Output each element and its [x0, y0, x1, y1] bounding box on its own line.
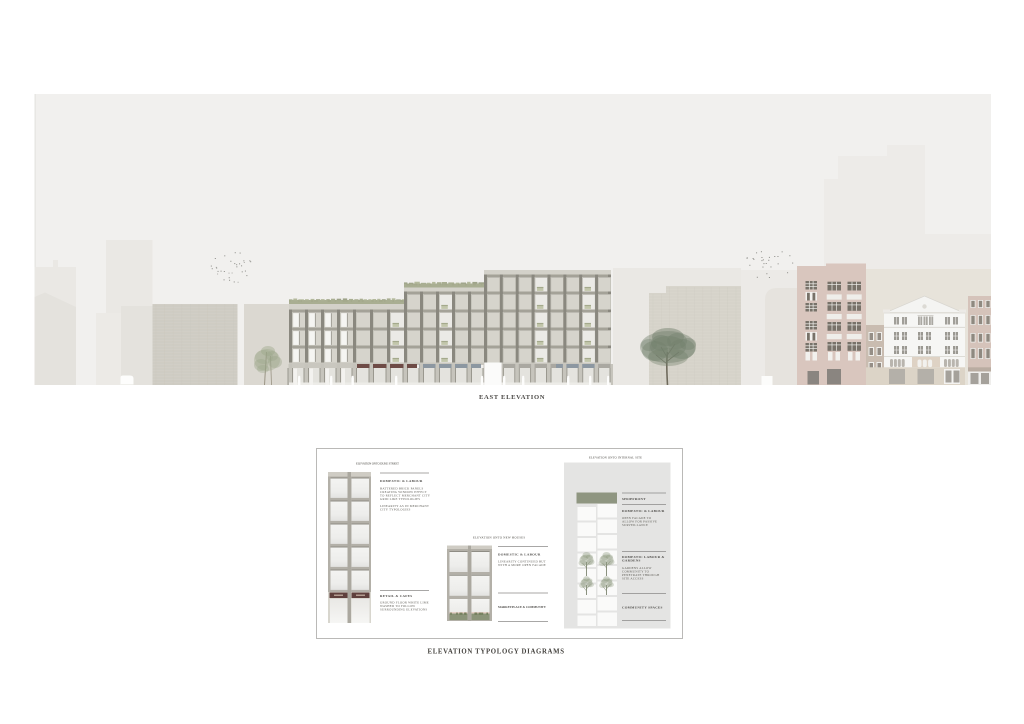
svg-text:ELEVATION ONTO NEW HOUSES: ELEVATION ONTO NEW HOUSES: [473, 536, 525, 540]
svg-text:CITY TYPOLOGIES: CITY TYPOLOGIES: [380, 508, 411, 512]
svg-text:EAST ELEVATION: EAST ELEVATION: [479, 394, 545, 401]
svg-text:GRID LIKE TYPOLOGIES: GRID LIKE TYPOLOGIES: [380, 497, 420, 501]
svg-text:ELEVATION ONTO INTERNAL SITE: ELEVATION ONTO INTERNAL SITE: [589, 456, 642, 460]
svg-text:GARDENS: GARDENS: [622, 559, 641, 563]
svg-text:WITH A MORE OPEN FACADE: WITH A MORE OPEN FACADE: [498, 563, 546, 567]
svg-text:MARKETPLACE & COMMUNITY: MARKETPLACE & COMMUNITY: [498, 605, 547, 609]
svg-text:SITE ACCESS: SITE ACCESS: [622, 577, 644, 581]
svg-text:ELEVATION TYPOLOGY DIAGRAMS: ELEVATION TYPOLOGY DIAGRAMS: [428, 648, 565, 655]
svg-text:DOMESTIC & LABOUR: DOMESTIC & LABOUR: [380, 479, 423, 483]
svg-text:SHOPFRONT: SHOPFRONT: [622, 497, 646, 501]
svg-text:COMMUNITY SPACES: COMMUNITY SPACES: [622, 606, 663, 610]
svg-text:SURVEILLANCE: SURVEILLANCE: [622, 523, 648, 527]
svg-text:RETAIL & CAFES: RETAIL & CAFES: [380, 594, 412, 598]
svg-text:DOMESTIC & LABOUR: DOMESTIC & LABOUR: [498, 553, 541, 557]
svg-text:DOMESTIC & LABOUR: DOMESTIC & LABOUR: [622, 509, 665, 513]
svg-text:SURROUNDING ELEVATIONS: SURROUNDING ELEVATIONS: [380, 608, 427, 612]
svg-text:ELEVATION ONTO DUKE STREET: ELEVATION ONTO DUKE STREET: [356, 462, 399, 466]
